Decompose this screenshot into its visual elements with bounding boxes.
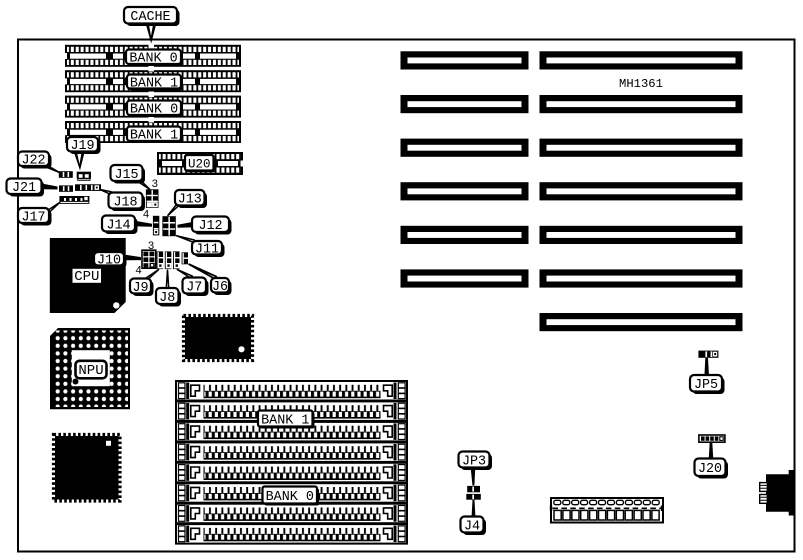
svg-text:CACHE: CACHE: [130, 10, 170, 25]
svg-text:BANK 1: BANK 1: [130, 76, 178, 91]
svg-text:J8: J8: [159, 291, 175, 306]
svg-text:BANK 0: BANK 0: [266, 490, 314, 505]
svg-text:J9: J9: [132, 281, 148, 296]
svg-text:J20: J20: [698, 462, 722, 477]
svg-text:MH1361: MH1361: [619, 77, 663, 91]
svg-text:J21: J21: [12, 181, 36, 196]
svg-text:J14: J14: [106, 218, 130, 233]
svg-text:J19: J19: [70, 139, 94, 154]
svg-text:NPU: NPU: [78, 363, 103, 379]
svg-text:J15: J15: [114, 168, 138, 183]
svg-text:JP5: JP5: [694, 378, 718, 393]
svg-text:J13: J13: [178, 193, 202, 208]
svg-text:U20: U20: [188, 157, 211, 171]
svg-text:J7: J7: [186, 280, 202, 295]
svg-text:BANK 1: BANK 1: [130, 129, 178, 144]
svg-text:3: 3: [148, 241, 155, 253]
svg-text:J17: J17: [21, 210, 45, 225]
svg-text:3: 3: [151, 179, 158, 191]
svg-text:J4: J4: [464, 519, 480, 534]
svg-text:J11: J11: [195, 243, 219, 258]
svg-text:J12: J12: [198, 219, 222, 234]
svg-text:4: 4: [135, 266, 142, 278]
svg-text:4: 4: [143, 210, 150, 222]
svg-text:J10: J10: [97, 254, 121, 269]
svg-text:JP3: JP3: [462, 454, 486, 469]
svg-text:BANK 0: BANK 0: [130, 103, 178, 118]
svg-text:J18: J18: [113, 195, 137, 210]
svg-text:J6: J6: [212, 280, 228, 295]
svg-text:CPU: CPU: [74, 269, 99, 285]
svg-text:BANK 0: BANK 0: [129, 52, 177, 67]
svg-text:BANK 1: BANK 1: [261, 413, 309, 428]
svg-text:J22: J22: [21, 154, 45, 169]
